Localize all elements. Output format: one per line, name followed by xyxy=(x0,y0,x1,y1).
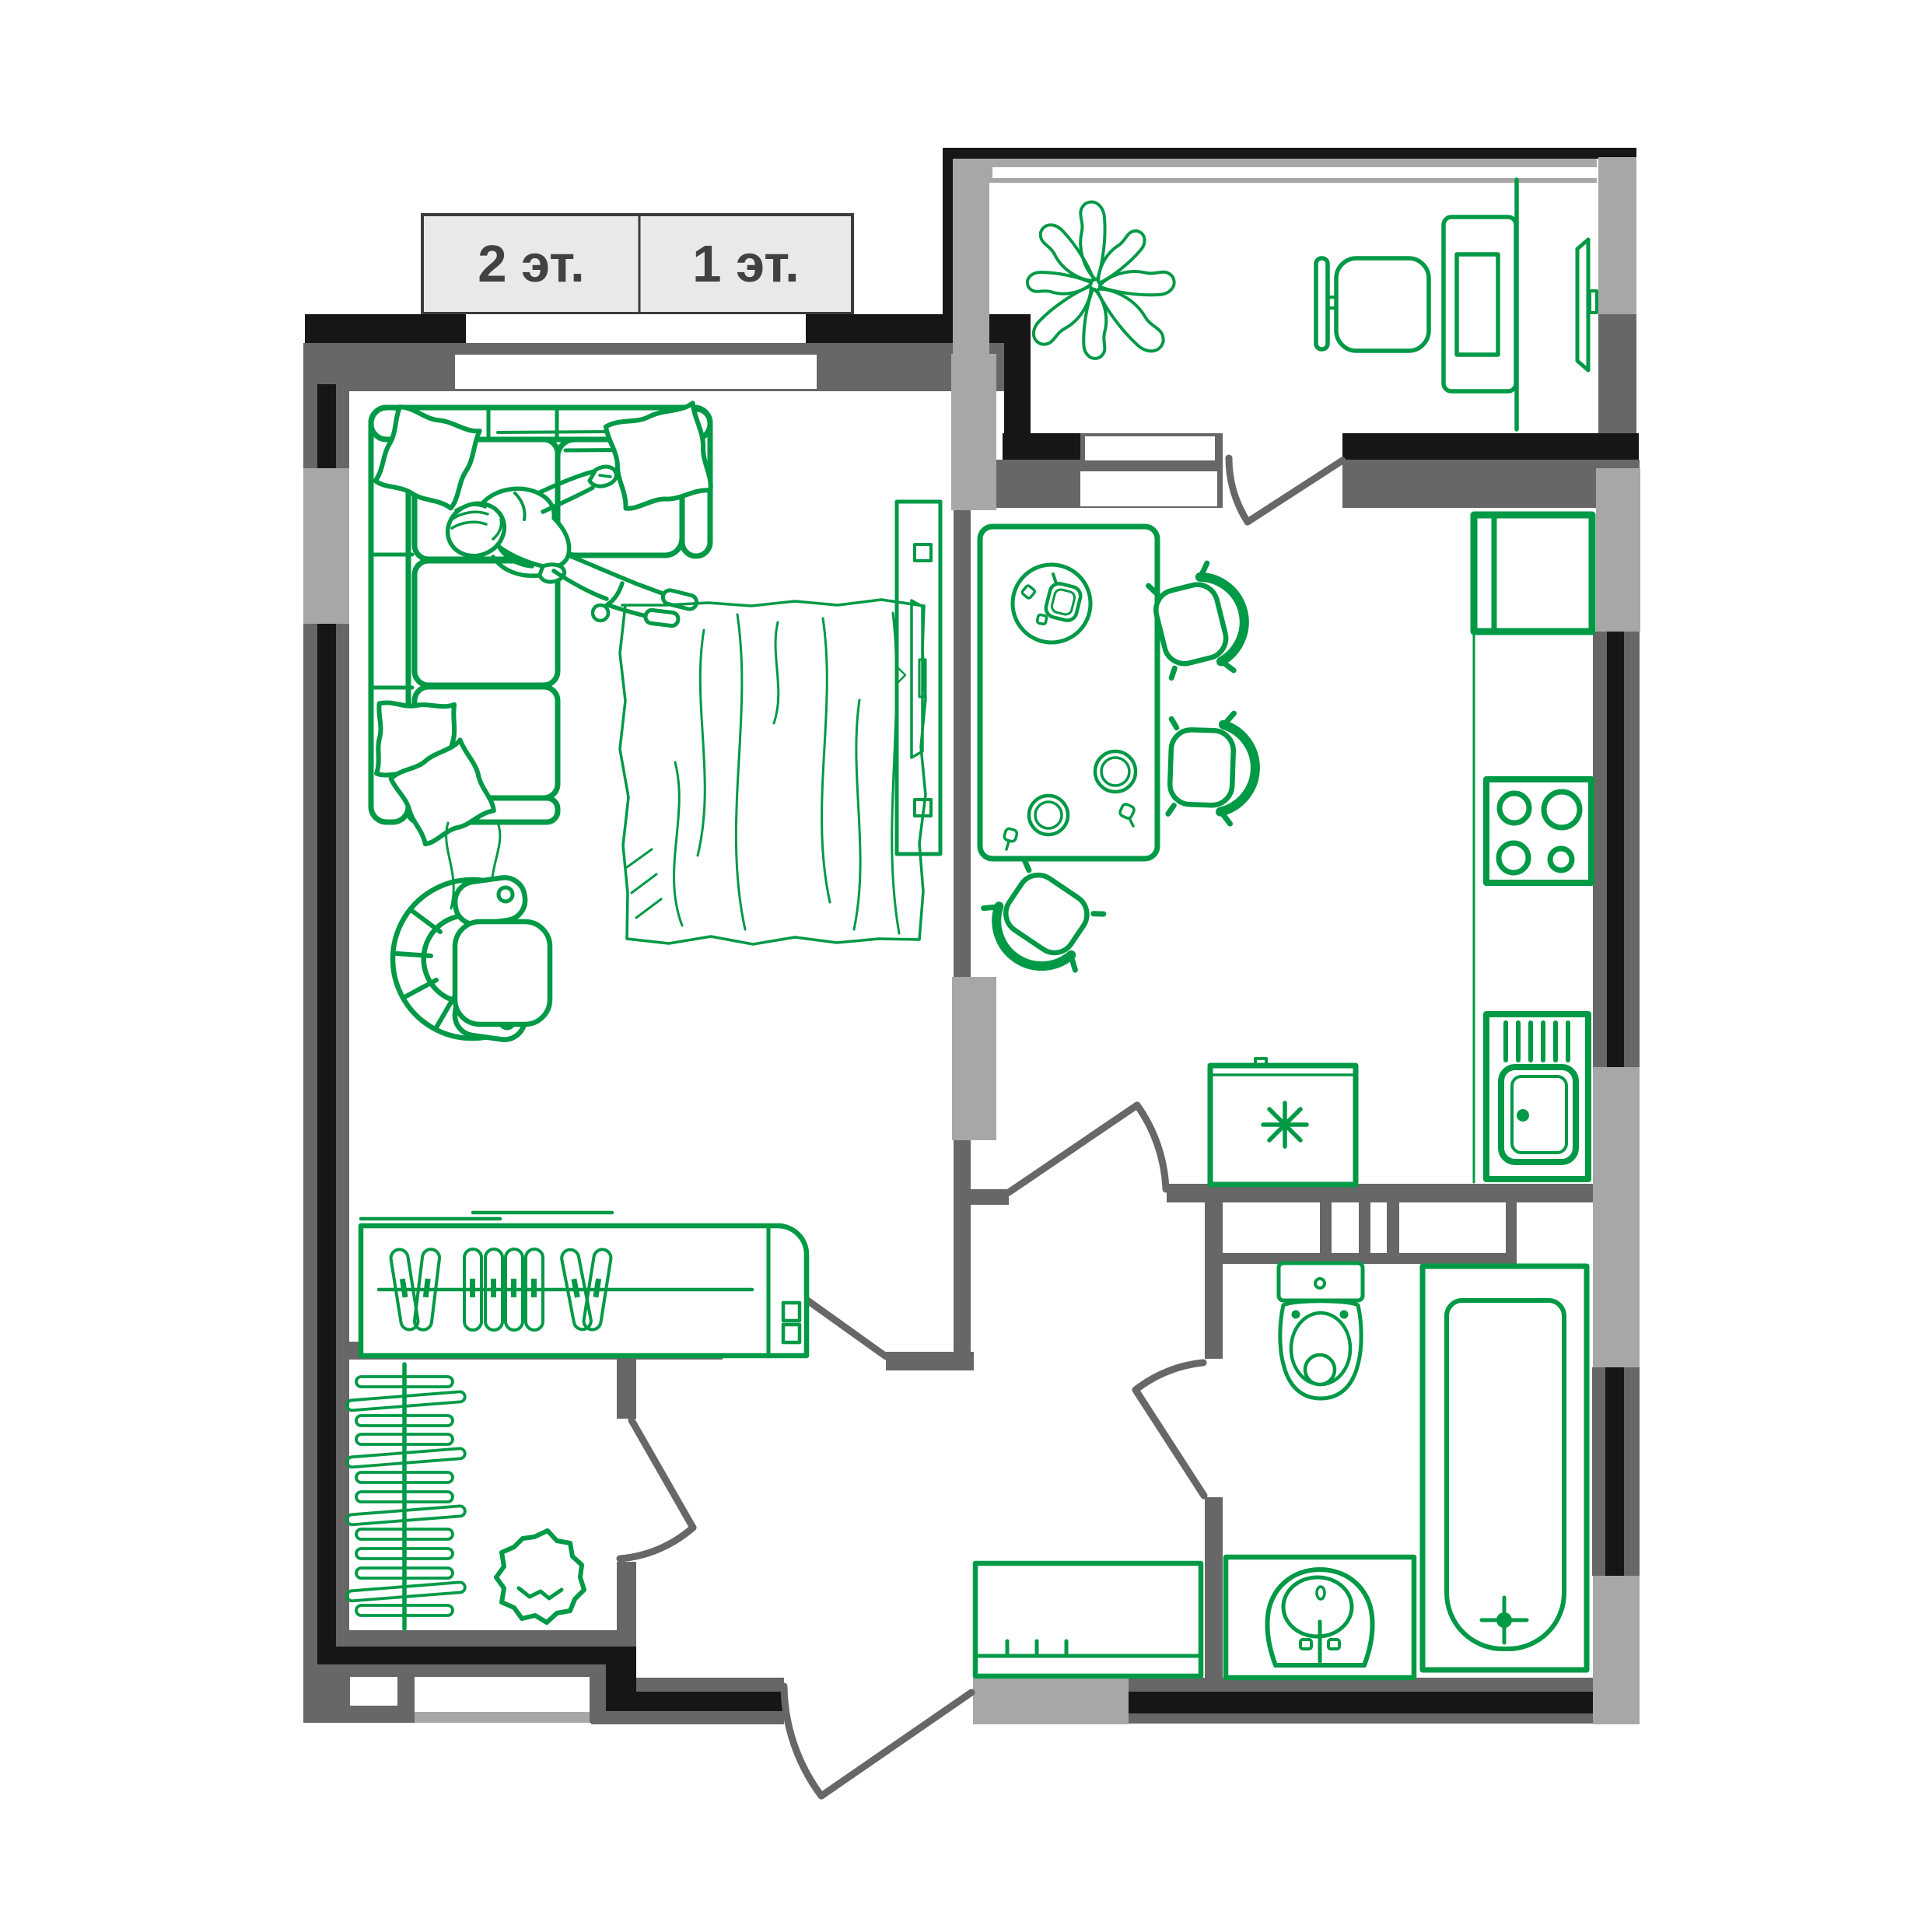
svg-text:2 эт.: 2 эт. xyxy=(478,235,585,293)
svg-text:1 эт.: 1 эт. xyxy=(692,235,800,293)
